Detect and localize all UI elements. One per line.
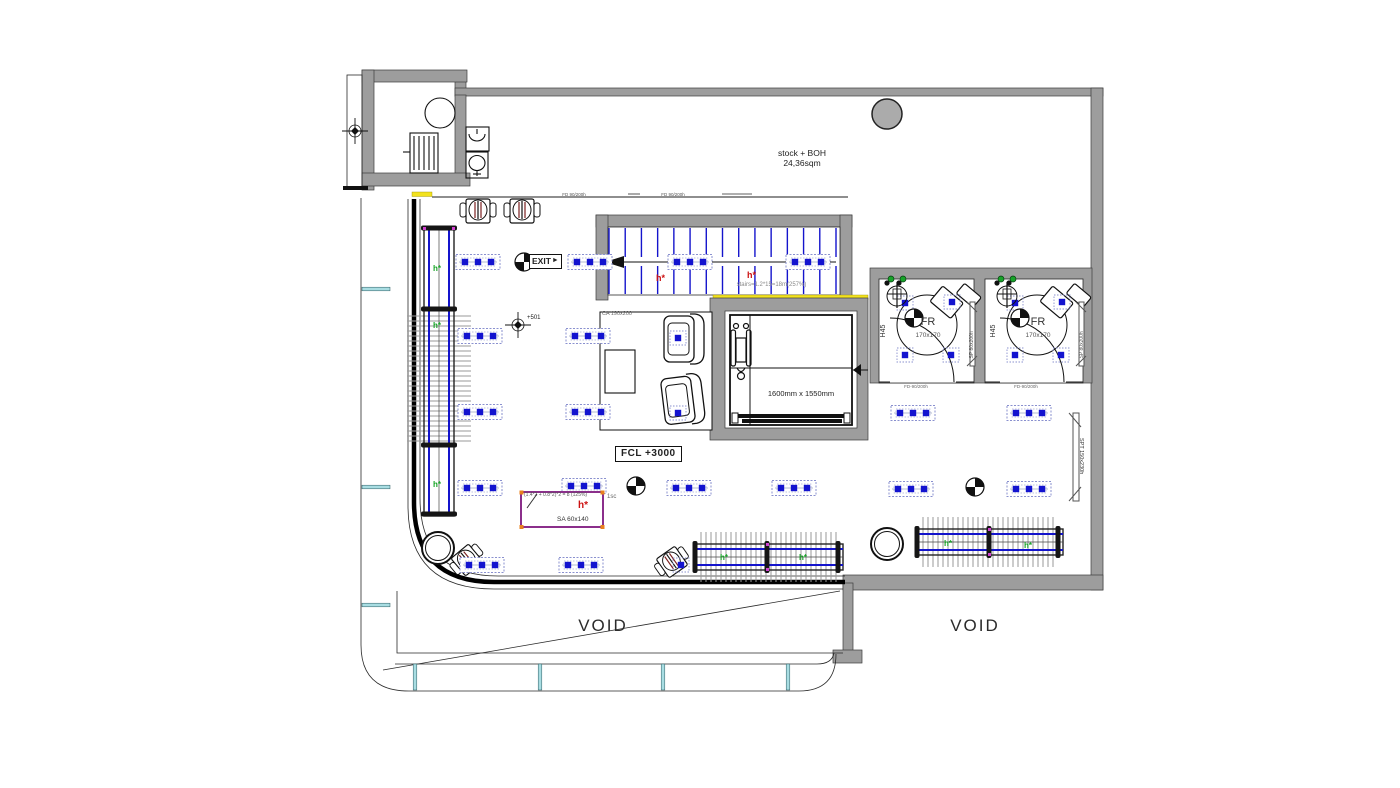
chair-icon: [504, 199, 540, 223]
chair-icon: [460, 199, 496, 223]
light-fixture-icon: [772, 481, 816, 496]
rack-height-label: h*: [433, 321, 442, 330]
sink-icon: [466, 127, 489, 151]
light-fixture-icon: [889, 482, 933, 497]
fr1-name-label: FR: [905, 316, 951, 329]
light-fixture-icon: [566, 329, 610, 344]
table-icon: [425, 98, 455, 128]
floor-plan-svg: h*h*h*h*h*h*h*h*h*: [0, 0, 1400, 788]
elevator: [710, 298, 868, 440]
level-marker-label: +501: [527, 315, 541, 322]
fr2-sp-label: SP 80x200h: [1080, 325, 1086, 365]
entry-threshold-yellow: [412, 192, 432, 197]
light-fixture-icon: [1007, 406, 1051, 421]
level-symbol-icon: [966, 478, 984, 496]
door-label-top-2: FD 90/200h: [647, 192, 699, 197]
light-fixture-icon: [456, 255, 500, 270]
lift-size-label: 1600mm x 1550mm: [751, 390, 851, 399]
stair-height-label: h*: [747, 270, 756, 280]
light-fixture-icon: [460, 558, 504, 573]
chair-icon: [651, 543, 692, 581]
fr2-name-label: FR: [1015, 316, 1061, 329]
spt-label: SPT 150x230h: [1078, 426, 1084, 486]
exit-sign: EXIT►: [529, 254, 562, 269]
light-fixture-icon: [566, 405, 610, 420]
door-label-top-1: FD 90/200h: [548, 192, 600, 197]
fr1-size-label: 170x170: [905, 332, 951, 339]
stock-boh-line2: 24,36sqm: [742, 159, 862, 169]
mullion: [362, 485, 390, 489]
light-fixture-icon: [568, 255, 612, 270]
mullion: [786, 664, 790, 690]
sa-scale-label: 1sc: [607, 494, 616, 501]
mullion: [538, 664, 542, 690]
seating-area: [600, 312, 712, 430]
fr2-h45-label: H45: [990, 317, 998, 345]
sa-name-label: SA 60x140: [557, 516, 588, 523]
rack-height-label: h*: [720, 553, 729, 562]
hook-icon: [998, 276, 1004, 282]
sa-formula-label: (1.4*2 + 0.8*2)*2 = 8 (125%): [524, 493, 587, 499]
rack-height-label: h*: [799, 553, 808, 562]
clothing-rack: [915, 517, 1064, 567]
fr2-door-label: FD-90/200h: [1000, 384, 1052, 389]
fr1-door-label: FD-90/200h: [890, 384, 942, 389]
fr1-sp-label: SP 80x200h: [970, 325, 976, 365]
stair-height-label: h*: [656, 273, 665, 283]
light-fixture-icon: [458, 329, 502, 344]
ca-area-label: CA 190x200: [602, 311, 632, 317]
exit-arrow-icon: ►: [552, 257, 559, 265]
column: [871, 528, 903, 560]
exit-label: EXIT: [532, 257, 551, 267]
rack-height-label: h*: [433, 480, 442, 489]
hook-icon: [900, 276, 906, 282]
light-fixture-icon: [786, 255, 830, 270]
rack-height-label: h*: [433, 264, 442, 273]
void-left-label: VOID: [553, 616, 653, 636]
hook-icon: [888, 276, 894, 282]
radiator-icon: [403, 133, 438, 173]
void-right-label: VOID: [925, 616, 1025, 636]
column: [872, 99, 902, 129]
fcl-level-label: FCL +3000: [615, 446, 682, 462]
sa-height-label: h*: [578, 500, 588, 512]
rack-height-label: h*: [944, 539, 953, 548]
hook-icon: [1010, 276, 1016, 282]
wc-room: [403, 98, 489, 178]
column: [422, 532, 454, 564]
fr2-size-label: 170x170: [1015, 332, 1061, 339]
mullion: [362, 603, 390, 607]
stairs-note-label: stairs=1.2*15=18m(257%): [714, 282, 829, 289]
stock-boh-label: stock + BOH 24,36sqm: [742, 149, 862, 169]
mullion: [413, 664, 417, 690]
light-fixture-icon: [891, 406, 935, 421]
fr1-h45-label: H45: [880, 317, 888, 345]
mullion: [362, 287, 390, 291]
light-fixture-icon: [458, 405, 502, 420]
light-fixture-icon: [559, 558, 603, 573]
floor-plan-page: h*h*h*h*h*h*h*h*h* stock + BOH 24,36sqm …: [0, 0, 1400, 788]
table-icon: [605, 350, 635, 393]
mullion: [661, 664, 665, 690]
light-fixture-icon: [458, 481, 502, 496]
level-symbol-icon: [627, 477, 645, 495]
light-fixture-icon: [1007, 482, 1051, 497]
light-fixture-icon: [668, 255, 712, 270]
clothing-rack: [693, 532, 844, 582]
rack-height-label: h*: [1024, 541, 1033, 550]
light-fixture-icon: [667, 481, 711, 496]
